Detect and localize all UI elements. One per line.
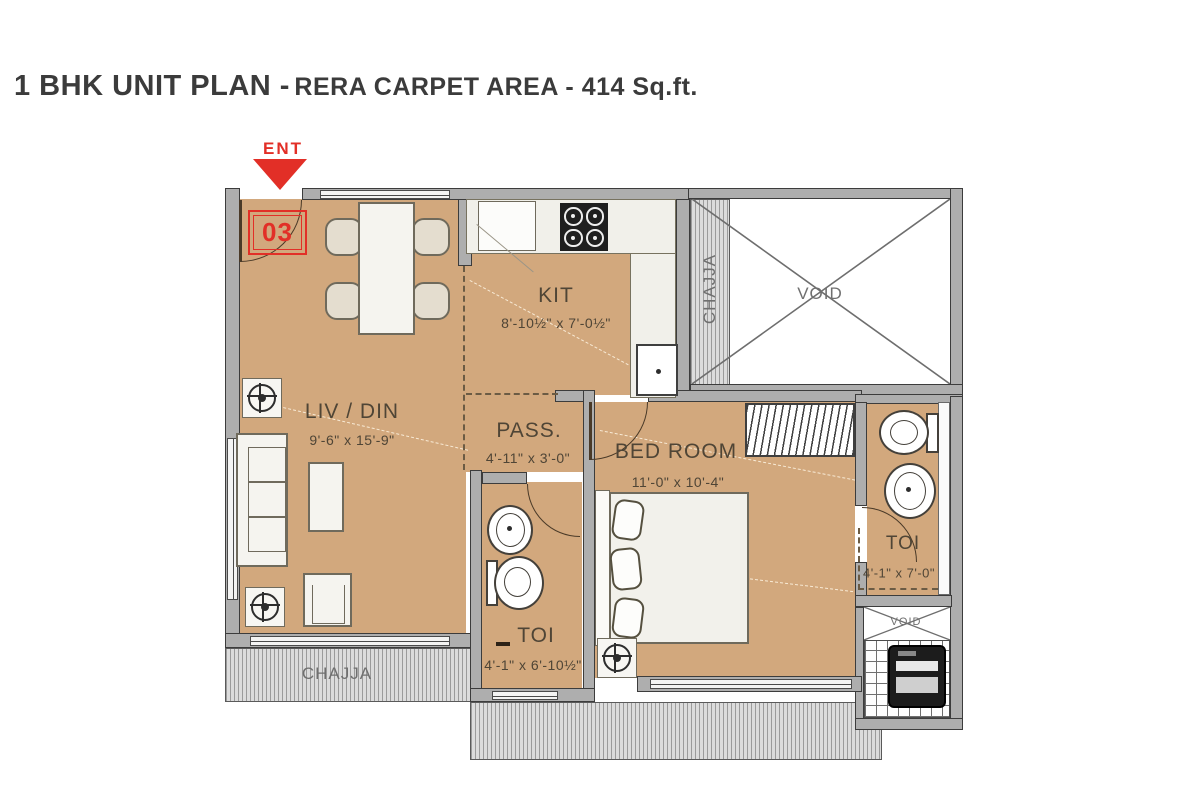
kitchen-sink [636,344,678,396]
sofa [236,433,288,567]
title-sub: RERA CARPET AREA - 414 Sq.ft. [294,73,697,101]
pillow [611,596,646,639]
dining-chair [412,218,450,256]
unit-number: 03 [253,215,302,250]
passage-dims: 4'-11" x 3'-0" [486,450,570,466]
wall [648,390,862,402]
entrance-label: ENT [263,139,303,159]
armchair [303,573,352,627]
ceiling-fan-icon [242,378,282,418]
bed-headboard [595,490,610,646]
wc-toilet [494,556,544,610]
void-label: VOID [797,284,843,304]
wash-basin [884,463,936,519]
window [650,679,852,689]
window [320,190,450,199]
ceiling-fan-icon [597,638,637,678]
entrance-arrow-icon [253,159,307,190]
door-stop [496,642,510,646]
wall [855,607,864,728]
toilet-bottom-dims: 4'-1" x 6'-10½" [484,657,582,673]
wall [855,595,952,607]
pillow [610,498,645,542]
floor-plan-canvas: 1 BHK UNIT PLAN - RERA CARPET AREA - 414… [0,0,1200,800]
chajja-bottom-label: CHAJJA [302,664,372,684]
title-main: 1 BHK UNIT PLAN - [14,70,290,102]
toilet-bottom-label: TOI [517,624,555,648]
kitchen-label: KIT [538,284,574,308]
wall [855,718,963,730]
wall [676,199,690,396]
passage-label: PASS. [496,419,561,443]
kitchen-platform [478,201,536,251]
wall [950,188,963,396]
dining-table [358,202,415,335]
bedroom-label: BED ROOM [615,440,737,464]
wall [950,396,963,730]
shaft [938,402,950,595]
wall [855,402,867,506]
coffee-table [308,462,344,532]
unit-number-box: 03 [248,210,307,255]
open-plan-dashed-line [463,266,465,470]
door-leaf [589,402,592,460]
kitchen-dims: 8'-10½" x 7'-0½" [501,315,611,331]
toilet-right-dims: 4'-1" x 7'-0" [863,566,935,581]
wall [688,188,963,199]
page-title: 1 BHK UNIT PLAN - RERA CARPET AREA - 414… [14,70,698,103]
wc-toilet [879,410,929,455]
wall [470,470,482,702]
living-label: LIV / DIN [305,400,399,424]
wardrobe [745,403,855,457]
washing-machine-icon [888,645,946,708]
wash-basin [487,505,533,555]
dining-chair [412,282,450,320]
chajja-right-label: CHAJJA [700,254,720,324]
bedroom-dims: 11'-0" x 10'-4" [632,474,725,490]
open-plan-dashed-line [466,393,558,395]
living-dims: 9'-6" x 15'-9" [309,432,394,448]
wall [482,472,527,484]
chajja-lower-strip [470,702,882,760]
gas-stove-icon [560,203,608,251]
door-leaf [239,200,242,262]
toilet-right-label: TOI [886,533,920,555]
window [492,691,558,700]
pillow [609,547,643,592]
window [250,636,450,646]
void-small-label: VOID [891,616,922,628]
ceiling-fan-icon [245,587,285,627]
